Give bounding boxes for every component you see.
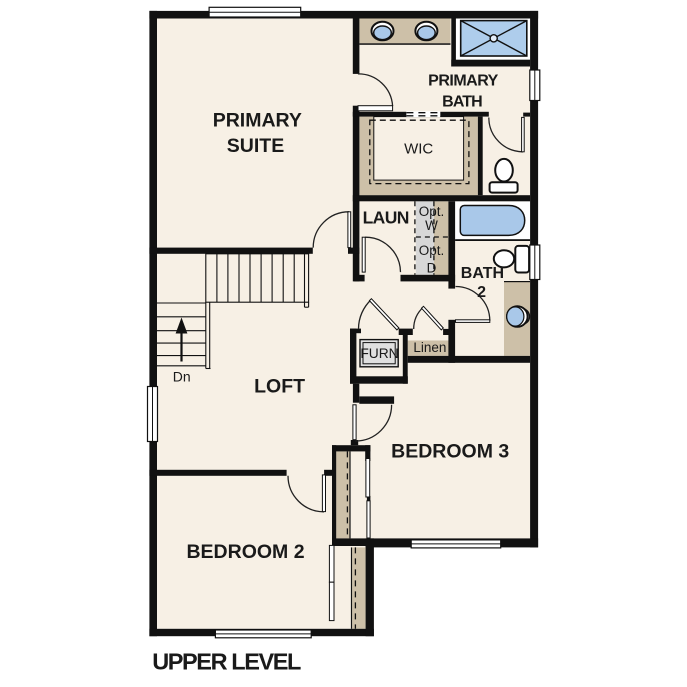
svg-text:WIC: WIC	[404, 140, 433, 157]
svg-text:Linen: Linen	[413, 340, 446, 355]
svg-text:PRIMARY: PRIMARY	[428, 73, 499, 90]
svg-text:SUITE: SUITE	[227, 135, 284, 157]
svg-text:Dn: Dn	[173, 369, 191, 385]
svg-text:W: W	[425, 218, 438, 233]
svg-text:D: D	[427, 261, 437, 276]
svg-text:LAUN: LAUN	[363, 207, 409, 227]
svg-text:LOFT: LOFT	[254, 376, 305, 398]
svg-text:BATH: BATH	[442, 94, 482, 111]
svg-text:BEDROOM 3: BEDROOM 3	[391, 441, 509, 463]
svg-text:UPPER LEVEL: UPPER LEVEL	[152, 649, 301, 675]
svg-text:Opt.: Opt.	[419, 243, 445, 258]
svg-text:Opt.: Opt.	[419, 204, 445, 219]
svg-text:PRIMARY: PRIMARY	[213, 110, 302, 132]
svg-text:FURN: FURN	[360, 346, 398, 361]
svg-text:2: 2	[477, 284, 486, 301]
svg-text:BATH: BATH	[461, 265, 504, 282]
svg-text:BEDROOM 2: BEDROOM 2	[186, 541, 304, 563]
